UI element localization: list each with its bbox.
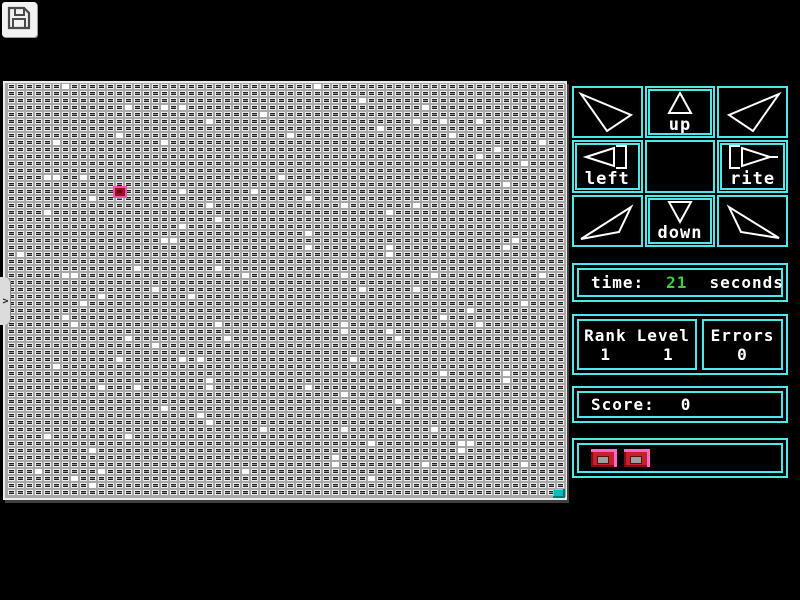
- lit-cell: [197, 357, 204, 362]
- dpad-down-label: down: [658, 225, 703, 242]
- game-board[interactable]: [3, 81, 567, 500]
- arrow-right-icon: [725, 144, 781, 170]
- lit-cell: [62, 84, 69, 89]
- lit-cell: [161, 140, 168, 145]
- dpad-up-button[interactable]: up: [645, 86, 716, 138]
- lit-cell: [539, 273, 546, 278]
- arrow-down-left-icon: [575, 198, 639, 244]
- lit-cell: [89, 483, 96, 488]
- lit-cell: [341, 273, 348, 278]
- lit-cell: [62, 315, 69, 320]
- lit-cell: [44, 434, 51, 439]
- time-panel: time: 21 seconds: [572, 263, 788, 302]
- lit-cell: [242, 273, 249, 278]
- board-grid: [8, 84, 566, 497]
- lit-cell: [125, 434, 132, 439]
- dpad-up-left-button[interactable]: [572, 86, 643, 138]
- lit-cell: [368, 441, 375, 446]
- lit-cell: [53, 364, 60, 369]
- lit-cell: [521, 161, 528, 166]
- level-label: Level: [637, 326, 690, 345]
- lit-cell: [305, 231, 312, 236]
- arrow-up-right-icon: [721, 89, 785, 135]
- lit-cell: [71, 476, 78, 481]
- lit-cell: [35, 469, 42, 474]
- lit-cell: [458, 448, 465, 453]
- lit-cell: [278, 175, 285, 180]
- lit-cell: [197, 413, 204, 418]
- lit-cell: [71, 322, 78, 327]
- goal-cell: [553, 489, 565, 498]
- lit-cell: [350, 357, 357, 362]
- lit-cell: [386, 329, 393, 334]
- dpad-rite-label: rite: [730, 171, 775, 188]
- lit-cell: [179, 189, 186, 194]
- lit-cell: [53, 140, 60, 145]
- lit-cell: [440, 371, 447, 376]
- lit-cell: [215, 217, 222, 222]
- errors-box: Errors 0: [702, 319, 783, 370]
- lit-cell: [116, 133, 123, 138]
- dpad-down-button[interactable]: down: [645, 195, 716, 247]
- lit-cell: [386, 245, 393, 250]
- lit-cell: [503, 378, 510, 383]
- lit-cell: [503, 371, 510, 376]
- lit-cell: [44, 210, 51, 215]
- lit-cell: [386, 210, 393, 215]
- score-panel: Score: 0: [572, 386, 788, 423]
- lit-cell: [305, 245, 312, 250]
- lit-cell: [539, 140, 546, 145]
- lit-cell: [152, 287, 159, 292]
- floppy-disk-icon: [6, 5, 32, 31]
- lit-cell: [512, 238, 519, 243]
- time-label: time:: [591, 273, 644, 292]
- sidebar-expand-tab[interactable]: >: [0, 277, 11, 325]
- lit-cell: [413, 119, 420, 124]
- lit-cell: [116, 357, 123, 362]
- lit-cell: [467, 308, 474, 313]
- direction-pad: up left rite: [572, 86, 788, 247]
- lit-cell: [287, 133, 294, 138]
- lit-cell: [161, 238, 168, 243]
- lit-cell: [395, 399, 402, 404]
- lit-cell: [206, 378, 213, 383]
- lit-cell: [125, 105, 132, 110]
- lit-cell: [341, 392, 348, 397]
- lit-cell: [467, 441, 474, 446]
- lit-cell: [341, 329, 348, 334]
- lit-cell: [368, 476, 375, 481]
- lit-cell: [431, 273, 438, 278]
- rank-level-box: Rank Level 1 1: [577, 319, 697, 370]
- lit-cell: [206, 420, 213, 425]
- errors-label: Errors: [711, 326, 775, 345]
- lit-cell: [422, 462, 429, 467]
- lit-cell: [413, 203, 420, 208]
- lit-cell: [98, 469, 105, 474]
- lit-cell: [98, 385, 105, 390]
- time-value: 21: [666, 273, 687, 292]
- lit-cell: [134, 385, 141, 390]
- lit-cell: [503, 182, 510, 187]
- lit-cell: [440, 315, 447, 320]
- lit-cell: [62, 273, 69, 278]
- game-window: { "toolbar": { "save_icon": "floppy-disk…: [0, 0, 800, 600]
- lit-cell: [206, 203, 213, 208]
- dpad-rite-button[interactable]: rite: [717, 140, 788, 192]
- lit-cell: [413, 287, 420, 292]
- rank-label: Rank: [584, 326, 627, 345]
- lit-cell: [188, 294, 195, 299]
- lit-cell: [242, 469, 249, 474]
- lit-cell: [332, 462, 339, 467]
- lit-cell: [341, 427, 348, 432]
- lit-cell: [305, 196, 312, 201]
- lit-cell: [80, 301, 87, 306]
- lit-cell: [152, 343, 159, 348]
- lit-cell: [53, 175, 60, 180]
- lit-cell: [161, 105, 168, 110]
- time-unit: seconds: [709, 273, 783, 292]
- dpad-up-right-button[interactable]: [717, 86, 788, 138]
- lit-cell: [260, 427, 267, 432]
- arrow-down-right-icon: [721, 198, 785, 244]
- lit-cell: [422, 105, 429, 110]
- lit-cell: [386, 252, 393, 257]
- errors-value: 0: [737, 345, 748, 364]
- lit-cell: [251, 189, 258, 194]
- lit-cell: [314, 84, 321, 89]
- arrow-down-icon: [666, 199, 694, 224]
- red-button-1[interactable]: [591, 449, 617, 467]
- buttons-panel: [572, 438, 788, 478]
- lit-cell: [44, 175, 51, 180]
- arrow-up-left-icon: [575, 89, 639, 135]
- red-button-2[interactable]: [624, 449, 650, 467]
- lit-cell: [458, 441, 465, 446]
- lit-cell: [206, 119, 213, 124]
- dpad-up-label: up: [669, 117, 691, 134]
- lit-cell: [89, 196, 96, 201]
- lit-cell: [503, 245, 510, 250]
- arrow-left-icon: [583, 144, 631, 170]
- lit-cell: [359, 287, 366, 292]
- lit-cell: [440, 119, 447, 124]
- lit-cell: [179, 224, 186, 229]
- lit-cell: [206, 385, 213, 390]
- lit-cell: [377, 126, 384, 131]
- lit-cell: [521, 301, 528, 306]
- lit-cell: [89, 448, 96, 453]
- rank-value: 1: [600, 345, 611, 364]
- lit-cell: [215, 322, 222, 327]
- dpad-left-button[interactable]: left: [572, 140, 643, 192]
- dpad-left-label: left: [585, 171, 630, 188]
- lit-cell: [170, 238, 177, 243]
- arrow-up-icon: [666, 91, 694, 116]
- level-value: 1: [663, 345, 674, 364]
- lit-cell: [332, 455, 339, 460]
- lit-cell: [521, 462, 528, 467]
- dpad-down-right-button[interactable]: [717, 195, 788, 247]
- lit-cell: [134, 266, 141, 271]
- score-label: Score:: [591, 395, 655, 414]
- lit-cell: [449, 133, 456, 138]
- lit-cell: [71, 273, 78, 278]
- save-button[interactable]: [2, 2, 37, 37]
- lit-cell: [80, 175, 87, 180]
- dpad-down-left-button[interactable]: [572, 195, 643, 247]
- lit-cell: [161, 406, 168, 411]
- lit-cell: [476, 322, 483, 327]
- lit-cell: [17, 252, 24, 257]
- lit-cell: [395, 336, 402, 341]
- lit-cell: [224, 336, 231, 341]
- lit-cell: [98, 294, 105, 299]
- lit-cell: [431, 427, 438, 432]
- player-cell: [113, 186, 127, 198]
- lit-cell: [305, 385, 312, 390]
- lit-cell: [341, 322, 348, 327]
- lit-cell: [215, 266, 222, 271]
- dpad-center-cell: [645, 140, 716, 192]
- lit-cell: [476, 154, 483, 159]
- chevron-right-icon: >: [2, 296, 8, 307]
- lit-cell: [359, 98, 366, 103]
- score-value: 0: [681, 395, 692, 414]
- lit-cell: [179, 105, 186, 110]
- lit-cell: [476, 119, 483, 124]
- stats-panel: Rank Level 1 1 Errors 0: [572, 314, 788, 375]
- lit-cell: [260, 112, 267, 117]
- lit-cell: [341, 203, 348, 208]
- lit-cell: [179, 357, 186, 362]
- lit-cell: [494, 147, 501, 152]
- lit-cell: [125, 336, 132, 341]
